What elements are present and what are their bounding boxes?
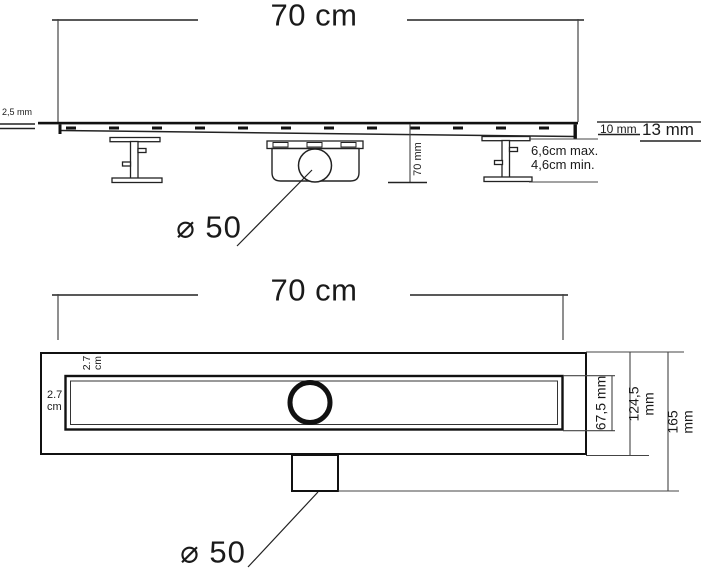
flange-width-label: 124,5 mm <box>626 374 655 434</box>
channel-end-plate-right <box>574 125 577 140</box>
outlet-spigot <box>292 455 338 491</box>
adjustable-foot-left <box>110 138 162 183</box>
linear-drain-technical-drawing: 70 cm 2,5 mm 10 mm 13 mm 6,6cm max. 4,6c… <box>0 0 701 572</box>
siphon-outlet-circle <box>299 149 332 182</box>
grate-surface <box>38 122 578 125</box>
plan-top-offset-label: 2.7 cm <box>82 355 104 370</box>
trap-flange-tabs <box>273 143 356 148</box>
side-outlet-diameter-label: ⌀ 50 <box>176 212 242 245</box>
foot-min-label: 4,6cm min. <box>531 158 595 172</box>
plan-left-offset-label: 2.7 cm <box>47 390 62 413</box>
height-dim-label: 70 mm <box>413 142 425 176</box>
plan-outlet-leader-line <box>248 492 318 567</box>
grate-slot-marks <box>66 127 549 130</box>
side-outlet-leader-line <box>237 170 312 246</box>
foot-max-label: 6,6cm max. <box>531 144 598 158</box>
plan-view-drawing <box>41 294 684 567</box>
channel-width-label: 67,5 mm <box>594 376 609 430</box>
channel-underside <box>61 131 575 137</box>
plan-length-label: 70 cm <box>271 275 358 308</box>
adjustable-foot-right <box>482 137 532 182</box>
plan-outlet-diameter-label: ⌀ 50 <box>180 537 246 570</box>
outlet-ring <box>290 383 330 423</box>
grate-thickness-label: 2,5 mm <box>2 108 32 117</box>
total-width-label: 165 mm <box>665 410 694 433</box>
depth-13mm-label: 13 mm <box>642 121 694 139</box>
channel-end-plate-left <box>59 125 62 135</box>
depth-10mm-label: 10 mm <box>600 123 637 136</box>
side-view-drawing <box>0 19 701 246</box>
side-length-label: 70 cm <box>271 0 358 32</box>
